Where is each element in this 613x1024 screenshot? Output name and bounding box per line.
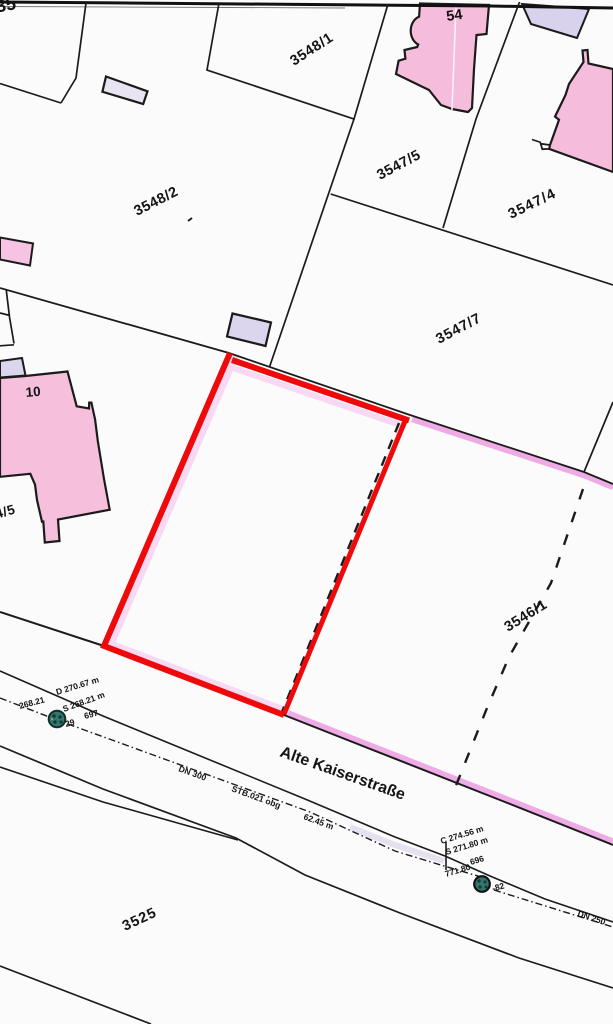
- svg-text:STB.021 obg: STB.021 obg: [230, 783, 282, 810]
- svg-text:771.80: 771.80: [444, 862, 472, 879]
- svg-text:35: 35: [0, 0, 17, 16]
- svg-text:3546/1: 3546/1: [502, 597, 551, 636]
- svg-text:44/5: 44/5: [0, 502, 17, 524]
- svg-text:3548/1: 3548/1: [287, 30, 336, 70]
- svg-text:3548/2: 3548/2: [132, 184, 181, 220]
- svg-text:3547/7: 3547/7: [433, 310, 484, 347]
- svg-text:696: 696: [469, 853, 486, 867]
- svg-text:3547/4: 3547/4: [506, 186, 559, 223]
- svg-text:DN 300: DN 300: [177, 763, 208, 782]
- svg-text:DN 250: DN 250: [576, 908, 607, 927]
- svg-text:3525: 3525: [120, 905, 160, 935]
- svg-text:268.21: 268.21: [18, 694, 46, 710]
- svg-text:10: 10: [25, 384, 41, 400]
- svg-text:29: 29: [64, 717, 76, 729]
- svg-text:54: 54: [445, 7, 463, 25]
- svg-text:62.45 m: 62.45 m: [302, 811, 335, 831]
- svg-text:697: 697: [83, 708, 100, 721]
- svg-text:3547/5: 3547/5: [374, 147, 423, 183]
